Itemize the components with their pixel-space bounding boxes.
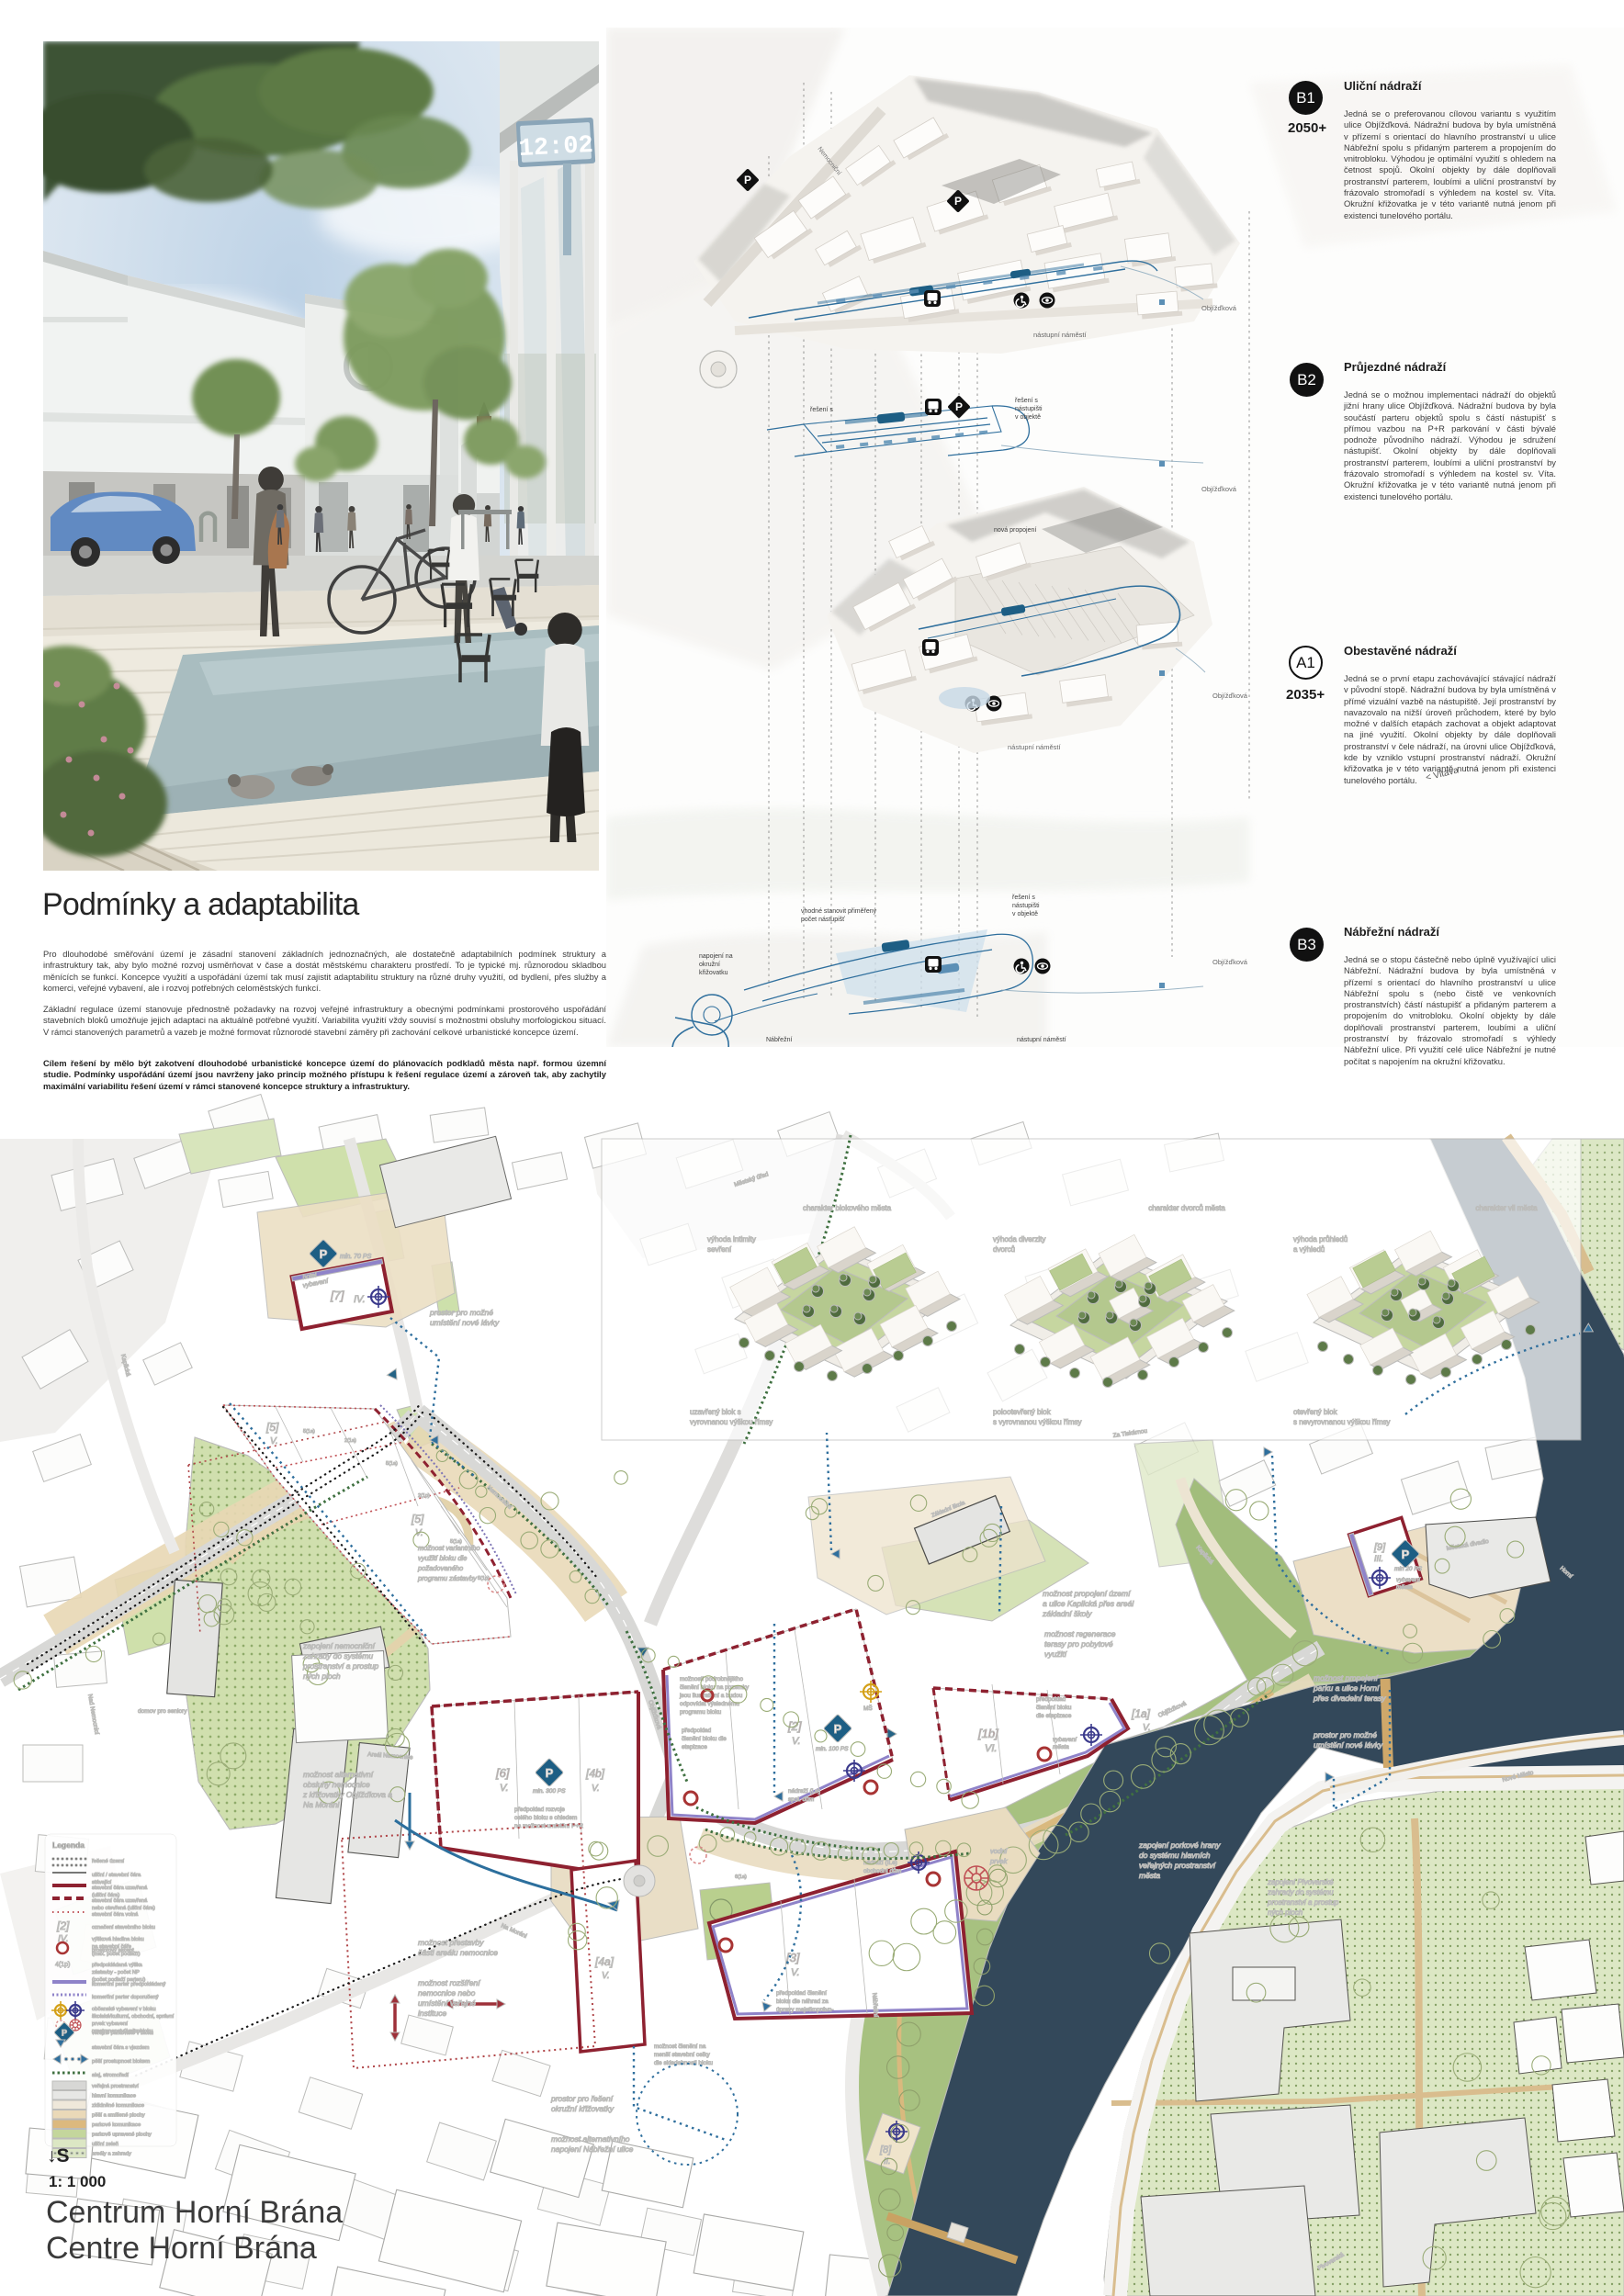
svg-text:umístění nové lávky: umístění nové lávky <box>1314 1740 1383 1750</box>
svg-text:II.: II. <box>884 2156 891 2166</box>
svg-text:[1a]: [1a] <box>1131 1707 1151 1720</box>
svg-text:polootevřený blok: polootevřený blok <box>993 1408 1052 1416</box>
svg-text:označení stavebního bloku: označení stavebního bloku <box>92 1925 155 1930</box>
svg-text:prostranství a prostup: prostranství a prostup <box>302 1661 378 1671</box>
svg-text:bloku dle náhrad za: bloku dle náhrad za <box>776 1998 829 2005</box>
svg-text:řešené území: řešené území <box>92 1859 125 1864</box>
svg-text:stavební čára uzavřená: stavební čára uzavřená <box>92 1885 148 1891</box>
svg-text:prostor pro řešení: prostor pro řešení <box>550 2094 615 2103</box>
svg-text:charakter dvorců města: charakter dvorců města <box>1148 1204 1225 1212</box>
svg-text:etapizace: etapizace <box>682 1744 707 1750</box>
svg-text:V.: V. <box>500 1783 509 1794</box>
svg-text:P: P <box>955 400 963 413</box>
svg-text:V.: V. <box>1143 1723 1151 1733</box>
svg-text:uliční zeleň: uliční zeleň <box>92 2142 118 2147</box>
svg-text:předpokládaná výška: předpokládaná výška <box>92 1963 143 1968</box>
svg-text:sevření: sevření <box>707 1245 732 1254</box>
svg-text:vybavení: vybavení <box>1053 1737 1077 1743</box>
svg-text:výšková hladina bloku: výšková hladina bloku <box>92 1937 144 1942</box>
svg-text:pěší a smíšené plochy: pěší a smíšené plochy <box>92 2113 145 2119</box>
svg-text:komerční parter předpokládaný: komerční parter předpokládaný <box>92 1982 165 1987</box>
svg-text:IV.: IV. <box>354 1294 366 1305</box>
svg-text:parku a ulice Horní: parku a ulice Horní <box>1313 1683 1381 1693</box>
svg-text:obchodní dům: obchodní dům <box>863 1867 901 1874</box>
svg-text:P: P <box>62 2029 67 2038</box>
svg-text:odpovídat výslednému: odpovídat výslednému <box>680 1701 739 1707</box>
svg-text:nemocnice nebo: nemocnice nebo <box>418 1988 476 1998</box>
svg-text:Na Moráni: Na Moráni <box>500 1922 527 1940</box>
svg-text:5(1p): 5(1p) <box>478 1576 490 1581</box>
svg-text:řešení s: řešení s <box>1015 398 1038 404</box>
svg-text:programu zástavby: programu zástavby <box>417 1574 478 1582</box>
svg-text:areály a zahrady: areály a zahrady <box>92 2152 131 2157</box>
svg-text:P: P <box>834 1722 842 1736</box>
svg-text:[6]: [6] <box>495 1766 510 1780</box>
svg-text:s nevyrovnanou výškou římsy: s nevyrovnanou výškou římsy <box>1293 1418 1390 1426</box>
svg-text:V.: V. <box>592 1784 600 1794</box>
svg-text:alej, stromořadí: alej, stromořadí <box>92 2073 129 2078</box>
svg-text:možnost propojení: možnost propojení <box>1314 1673 1380 1683</box>
svg-text:prostor pro možné: prostor pro možné <box>429 1308 493 1317</box>
svg-text:možnost alternativního: možnost alternativního <box>551 2134 630 2144</box>
svg-text:možnost propojení území: možnost propojení území <box>1043 1589 1132 1598</box>
svg-text:stavební čára s vjezdem: stavební čára s vjezdem <box>92 2045 150 2051</box>
svg-text:Legenda: Legenda <box>52 1840 85 1850</box>
svg-text:přes divadelní terasy: přes divadelní terasy <box>1313 1694 1386 1703</box>
svg-text:uliční / stavební čára: uliční / stavební čára <box>92 1873 141 1878</box>
svg-text:okružní: okružní <box>699 962 720 968</box>
svg-text:celého bloku s ohledem: celého bloku s ohledem <box>514 1815 577 1821</box>
svg-text:řešení s: řešení s <box>810 407 833 413</box>
svg-text:možnost přestavby: možnost přestavby <box>418 1938 484 1947</box>
svg-text:zástavby - počet NP: zástavby - počet NP <box>92 1970 140 1975</box>
svg-text:vodní: vodní <box>990 1847 1008 1855</box>
svg-text:předpoklad: předpoklad <box>1036 1696 1066 1703</box>
svg-text:v objektě: v objektě <box>1012 911 1038 917</box>
svg-text:pěší prostupnost blokem: pěší prostupnost blokem <box>92 2059 150 2065</box>
svg-text:Na Moráni: Na Moráni <box>303 1800 340 1809</box>
svg-text:Nad Nemocnicí: Nad Nemocnicí <box>86 1694 100 1735</box>
svg-text:otevřený blok: otevřený blok <box>1293 1408 1338 1416</box>
svg-text:města: města <box>1139 1871 1160 1880</box>
svg-text:stavební čára uzavřená: stavební čára uzavřená <box>92 1898 148 1904</box>
svg-text:[5]: [5] <box>411 1513 424 1525</box>
svg-text:P: P <box>744 174 751 186</box>
svg-text:zapojení nemocniční: zapojení nemocniční <box>302 1641 377 1650</box>
svg-text:části areálu nemocnice: části areálu nemocnice <box>418 1948 498 1957</box>
svg-text:města: města <box>1396 1584 1413 1591</box>
svg-text:menší stavební celky: menší stavební celky <box>654 2052 710 2058</box>
svg-text:prostranství a prostup: prostranství a prostup <box>1267 1898 1339 1907</box>
svg-text:Objížďková: Objížďková <box>1201 304 1237 312</box>
svg-text:[5]: [5] <box>265 1421 279 1434</box>
svg-text:nástupišti: nástupišti <box>1015 406 1043 412</box>
svg-text:programu bloku: programu bloku <box>680 1709 722 1716</box>
svg-text:výhoda průhledů: výhoda průhledů <box>1293 1235 1348 1244</box>
svg-text:[4a]: [4a] <box>594 1955 615 1968</box>
svg-text:III.: III. <box>1374 1554 1383 1563</box>
svg-text:požadovaného: požadovaného <box>417 1564 463 1572</box>
svg-text:nástupišti: nástupišti <box>1012 903 1040 909</box>
svg-text:vhodné stanovit přiměřený: vhodné stanovit přiměřený <box>801 908 877 915</box>
svg-text:využití: využití <box>1044 1649 1068 1659</box>
svg-text:2(1p): 2(1p) <box>418 1493 430 1499</box>
svg-text:ných ploch: ných ploch <box>303 1671 341 1681</box>
svg-text:nádraží (I.e): nádraží (I.e) <box>788 1788 820 1795</box>
svg-text:veřejných prostranství: veřejných prostranství <box>1139 1861 1217 1870</box>
svg-text:možnost alternativní: možnost alternativní <box>303 1770 375 1779</box>
svg-text:počet nástupišť: počet nástupišť <box>801 917 845 923</box>
svg-text:domov pro seniory: domov pro seniory <box>138 1708 187 1715</box>
svg-text:komerční parter doporučený: komerční parter doporučený <box>92 1995 159 2000</box>
svg-text:možnost variantního: možnost variantního <box>418 1544 480 1552</box>
svg-text:předpoklad: předpoklad <box>682 1728 712 1734</box>
svg-text:6(1a): 6(1a) <box>735 1874 747 1880</box>
svg-text:napojení na: napojení na <box>699 953 733 960</box>
svg-text:min. 70 PS: min. 70 PS <box>340 1254 372 1260</box>
svg-text:nástupní náměstí: nástupní náměstí <box>1017 1037 1066 1043</box>
svg-text:[9]: [9] <box>1373 1542 1386 1553</box>
svg-text:veřejná prostranství: veřejná prostranství <box>92 2084 139 2089</box>
svg-text:min 20 PS: min 20 PS <box>1394 1566 1423 1572</box>
svg-text:zahrady do systému: zahrady do systému <box>302 1651 373 1660</box>
svg-text:stavební čára volná: stavební čára volná <box>92 1912 139 1918</box>
svg-text:prostorový akcent: prostorový akcent <box>92 1948 134 1953</box>
svg-text:vyrovnanou výškou římsy: vyrovnanou výškou římsy <box>690 1418 773 1426</box>
svg-text:P: P <box>320 1247 328 1261</box>
svg-text:dle etapizace: dle etapizace <box>1036 1713 1072 1719</box>
svg-text:zapojení Pivovarské: zapojení Pivovarské <box>1267 1878 1334 1886</box>
svg-text:členění bloku: členění bloku <box>1036 1705 1072 1711</box>
svg-text:charakter blokového města: charakter blokového města <box>803 1204 892 1212</box>
svg-text:V.: V. <box>791 1967 800 1978</box>
svg-text:zklidněné komunikace: zklidněné komunikace <box>92 2103 144 2109</box>
svg-text:Objížďková: Objížďková <box>1212 692 1248 700</box>
svg-text:P: P <box>954 195 962 208</box>
svg-text:[1b]: [1b] <box>977 1727 998 1740</box>
svg-text:města: města <box>1053 1744 1069 1750</box>
svg-text:zahrady do systému: zahrady do systému <box>1267 1888 1334 1896</box>
svg-text:parkové komunikace: parkové komunikace <box>92 2122 141 2128</box>
svg-text:min. 100 PS: min. 100 PS <box>816 1746 849 1752</box>
svg-text:využití bloku dle: využití bloku dle <box>418 1554 467 1562</box>
svg-text:uzavřený blok s: uzavřený blok s <box>690 1408 741 1416</box>
svg-text:možnost členění na: možnost členění na <box>654 2043 706 2050</box>
svg-text:terasy pro pobytové: terasy pro pobytové <box>1044 1639 1113 1649</box>
svg-text:školské/kulturní, obchodní, sp: školské/kulturní, obchodní, správní <box>92 2014 175 2020</box>
svg-text:nástupní náměstí: nástupní náměstí <box>1033 331 1087 339</box>
svg-text:napojení Nábřežní ulice: napojení Nábřežní ulice <box>551 2144 634 2154</box>
svg-text:dvorců: dvorců <box>993 1245 1015 1254</box>
svg-text:VI.: VI. <box>985 1743 997 1754</box>
svg-text:parkově upravené plochy: parkově upravené plochy <box>92 2133 152 2138</box>
svg-text:nástupní náměstí: nástupní náměstí <box>1008 743 1061 751</box>
svg-text:P: P <box>1402 1548 1410 1561</box>
svg-text:prostor pro možné: prostor pro možné <box>1313 1730 1377 1739</box>
svg-text:výhoda intimity: výhoda intimity <box>707 1235 756 1244</box>
svg-text:5(1a): 5(1a) <box>303 1429 315 1435</box>
svg-text:Objížďková: Objížďková <box>1201 485 1237 493</box>
svg-text:instituce: instituce <box>418 2009 446 2018</box>
svg-text:nádraží (II.e): nádraží (II.e) <box>863 1860 897 1866</box>
svg-text:prvek vybavení: prvek vybavení <box>92 2021 128 2027</box>
svg-text:umístění veřejné: umístění veřejné <box>418 1998 476 2008</box>
svg-text:nová propojení: nová propojení <box>994 527 1036 534</box>
svg-text:možnost regenerace: možnost regenerace <box>1044 1629 1116 1638</box>
svg-text:min. 300 PS: min. 300 PS <box>533 1788 566 1795</box>
svg-text:základní školy: základní školy <box>1042 1609 1092 1618</box>
svg-text:členění bloku dle: členění bloku dle <box>682 1736 727 1742</box>
svg-text:Nábřežní: Nábřežní <box>766 1037 792 1043</box>
svg-text:občanské vybavení v bloku: občanské vybavení v bloku <box>92 2007 156 2012</box>
svg-text:veřejné parkoviště v bloku: veřejné parkoviště v bloku <box>92 2031 153 2036</box>
svg-text:do systému hlavních: do systému hlavních <box>1139 1851 1211 1860</box>
svg-text:obsluhy nemocnice: obsluhy nemocnice <box>303 1780 370 1789</box>
svg-text:v objektě: v objektě <box>1015 414 1041 421</box>
svg-text:Objížďková: Objížďková <box>1212 958 1248 966</box>
svg-text:12:02: 12:02 <box>518 132 593 163</box>
svg-text:vybavení: vybavení <box>1396 1577 1421 1583</box>
svg-text:umístění nové lávky: umístění nové lávky <box>430 1318 500 1327</box>
svg-text:[8]: [8] <box>879 2144 892 2155</box>
svg-text:zapojení porkové hrany: zapojení porkové hrany <box>1138 1840 1221 1850</box>
svg-text:V.: V. <box>792 1736 801 1747</box>
svg-text:předpoklad členění: předpoklad členění <box>776 1990 827 1997</box>
svg-text:prvek: prvek <box>989 1857 1009 1865</box>
svg-text:charakter vil města: charakter vil města <box>1475 1204 1538 1212</box>
svg-text:V.: V. <box>602 1971 610 1981</box>
svg-text:ných ploch: ných ploch <box>1268 1908 1303 1917</box>
svg-text:možnost rozšíření: možnost rozšíření <box>418 1978 481 1987</box>
svg-text:5(1a): 5(1a) <box>386 1461 398 1467</box>
svg-text:řešení s: řešení s <box>1012 895 1035 901</box>
svg-text:spol. dům: spol. dům <box>788 1795 814 1803</box>
svg-text:nebo otevřená (uliční čára): nebo otevřená (uliční čára) <box>92 1906 155 1911</box>
svg-text:hlavní komunikace: hlavní komunikace <box>92 2094 136 2099</box>
svg-text:křižovatku: křižovatku <box>699 970 728 976</box>
svg-text:z křižovatky Objížďkova a: z křižovatky Objížďkova a <box>302 1790 392 1799</box>
svg-text:a výhledů: a výhledů <box>1293 1245 1325 1254</box>
svg-text:a ulice Kaplická přes areál: a ulice Kaplická přes areál <box>1043 1599 1134 1608</box>
svg-text:[4b]: [4b] <box>585 1767 605 1780</box>
svg-text:výhoda diverzity: výhoda diverzity <box>993 1235 1045 1244</box>
svg-text:dle skladebnosti bloku: dle skladebnosti bloku <box>654 2060 713 2066</box>
svg-text:[2]: [2] <box>56 1919 70 1932</box>
svg-text:4(1p): 4(1p) <box>55 1962 70 1968</box>
svg-text:předpoklad rozvoje: předpoklad rozvoje <box>514 1806 565 1813</box>
svg-text:s vyrovnanou výškou římsy: s vyrovnanou výškou římsy <box>993 1418 1081 1426</box>
svg-text:úpravy majetkoprávn-: úpravy majetkoprávn- <box>776 2007 834 2013</box>
svg-text:P: P <box>546 1766 554 1780</box>
svg-text:2(1a): 2(1a) <box>344 1438 356 1444</box>
svg-text:MŠ: MŠ <box>863 1704 873 1712</box>
svg-text:V.: V. <box>270 1436 278 1446</box>
svg-text:[7]: [7] <box>330 1289 344 1302</box>
svg-text:okružní křižovatky: okružní křižovatky <box>551 2104 615 2113</box>
